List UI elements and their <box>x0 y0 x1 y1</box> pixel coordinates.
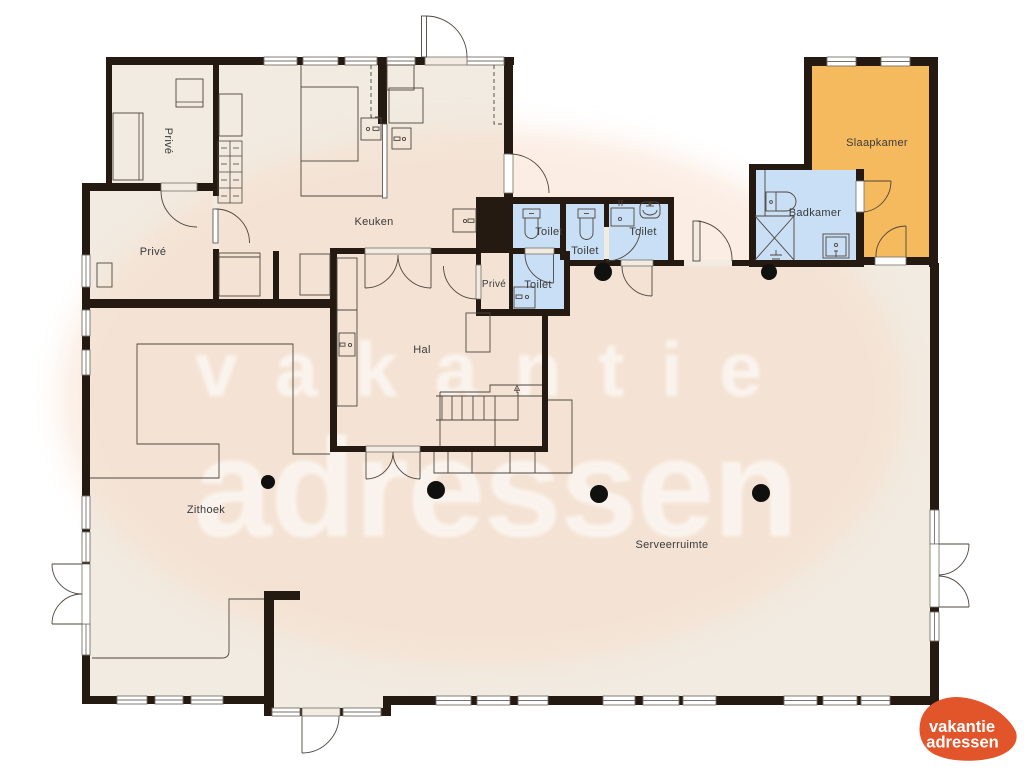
svg-text:Toilet: Toilet <box>535 226 562 238</box>
svg-text:Zithoek: Zithoek <box>187 504 225 516</box>
svg-text:Privé: Privé <box>162 128 174 155</box>
svg-text:Privé: Privé <box>140 246 167 258</box>
svg-text:Hal: Hal <box>413 344 430 356</box>
svg-text:vakantie: vakantie <box>195 327 799 413</box>
svg-text:Toilet: Toilet <box>571 245 598 257</box>
svg-text:Toilet: Toilet <box>524 279 551 291</box>
svg-text:Serveerruimte: Serveerruimte <box>636 539 709 551</box>
svg-text:Badkamer: Badkamer <box>789 207 842 219</box>
svg-text:Keuken: Keuken <box>354 216 393 228</box>
svg-text:Toilet: Toilet <box>629 226 656 238</box>
svg-text:Slaapkamer: Slaapkamer <box>846 137 908 149</box>
svg-text:Privé: Privé <box>482 279 506 290</box>
svg-text:adressen: adressen <box>926 734 998 752</box>
